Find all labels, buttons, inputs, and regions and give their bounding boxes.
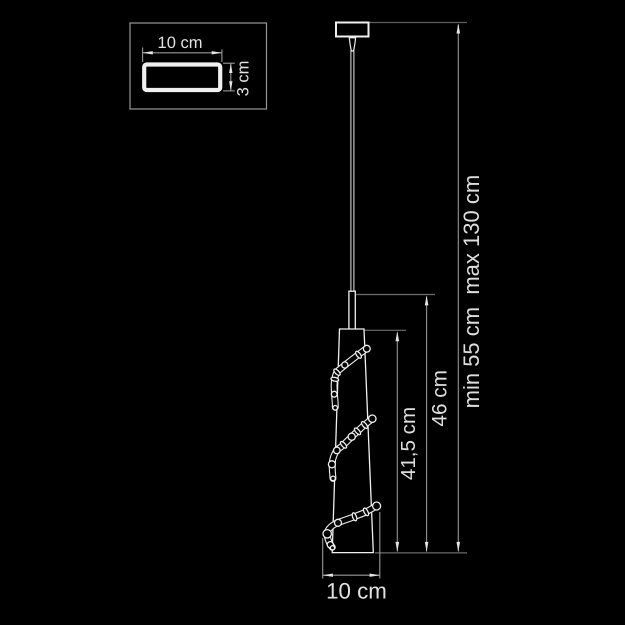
svg-text:10 cm: 10 cm xyxy=(326,578,387,603)
svg-text:10 cm: 10 cm xyxy=(158,34,203,52)
svg-text:41,5 cm: 41,5 cm xyxy=(397,407,420,480)
svg-text:3 cm: 3 cm xyxy=(235,61,253,97)
svg-text:46 cm: 46 cm xyxy=(428,370,451,427)
svg-text:min 55 cm max 130 cm: min 55 cm max 130 cm xyxy=(459,175,484,409)
